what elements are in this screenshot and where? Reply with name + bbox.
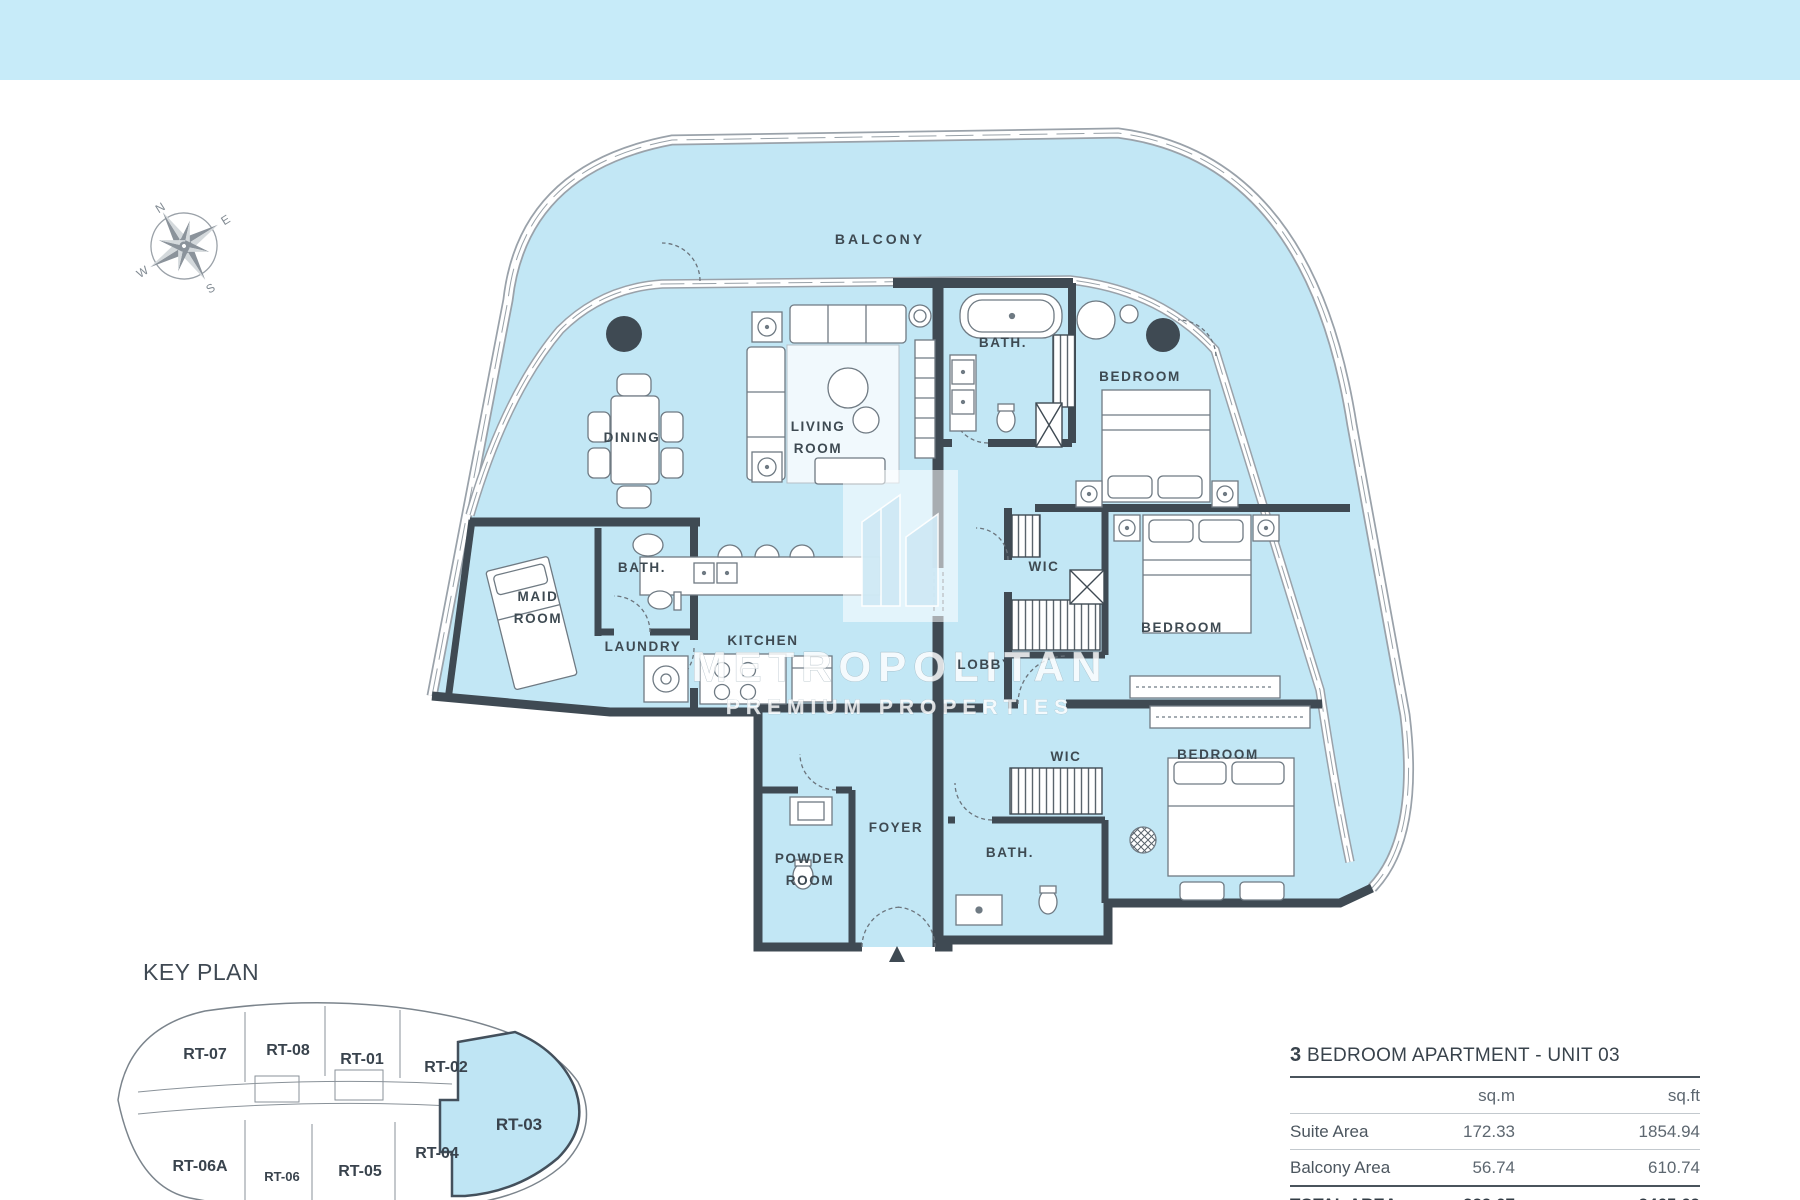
balcony-planter-icon (606, 316, 642, 352)
room-label-maid: MAID (518, 589, 559, 604)
table-row-balcony-area: Balcony Area 56.74 610.74 (1290, 1149, 1700, 1185)
table-row-suite-area: Suite Area 172.33 1854.94 (1290, 1113, 1700, 1149)
table-row-total-area: TOTAL AREA 229.07 2465.69 (1290, 1185, 1700, 1200)
total-area-sqm: 229.07 (1420, 1195, 1515, 1200)
key-plan-unit-rt06: RT-06 (264, 1169, 299, 1184)
room-label-living: ROOM (794, 441, 842, 456)
compass-w-label: W (134, 263, 152, 281)
room-label-living: LIVING (791, 419, 846, 434)
area-table-header-empty (1290, 1086, 1420, 1106)
room-label-wic-2: WIC (1050, 749, 1081, 764)
room-label-kitchen: KITCHEN (727, 633, 798, 648)
total-area-label: TOTAL AREA (1290, 1195, 1420, 1200)
key-plan-unit-rt05: RT-05 (338, 1163, 382, 1180)
compass-n-label: N (153, 200, 168, 216)
shaft-box-icon (1070, 570, 1104, 604)
page: N E S W (0, 0, 1800, 1200)
compass-rose-icon: N E S W (110, 174, 259, 323)
room-label-bath-master: BATH. (979, 335, 1027, 350)
floor-plan-canvas: N E S W (0, 0, 1800, 1200)
room-label-dining: DINING (604, 430, 661, 445)
total-area-sqft: 2465.69 (1515, 1195, 1700, 1200)
compass-s-label: S (203, 280, 217, 296)
room-label-powder: POWDER (775, 851, 845, 866)
key-plan-unit-rt07: RT-07 (183, 1046, 227, 1063)
area-table-header-row: sq.m sq.ft (1290, 1076, 1700, 1113)
key-plan-unit-rt04: RT-04 (415, 1145, 459, 1162)
room-label-bath-2: BATH. (986, 845, 1034, 860)
room-label-bedroom-2: BEDROOM (1141, 620, 1223, 635)
key-plan-unit-rt08: RT-08 (266, 1042, 310, 1059)
balcony-area-sqm: 56.74 (1420, 1158, 1515, 1178)
area-table-title-number: 3 (1290, 1044, 1301, 1066)
key-plan-unit-rt01: RT-01 (340, 1051, 384, 1068)
top-banner (0, 0, 1800, 80)
key-plan-unit-rt03: RT-03 (496, 1115, 542, 1134)
room-label-balcony: BALCONY (835, 231, 925, 247)
room-label-powder: ROOM (786, 873, 834, 888)
balcony-area-sqft: 610.74 (1515, 1158, 1700, 1178)
room-label-lobby: LOBBY (957, 657, 1012, 672)
key-plan: KEY PLAN RT-07 RT-08 RT-01 RT-02 RT-03 R… (118, 959, 586, 1200)
area-table-title: 3 BEDROOM APARTMENT - UNIT 03 (1290, 1044, 1700, 1067)
watermark-title: METROPOLITAN (692, 643, 1109, 690)
room-label-bedroom-1: BEDROOM (1099, 369, 1181, 384)
key-plan-unit-rt02: RT-02 (424, 1059, 468, 1076)
shaft-box-icon (1036, 403, 1062, 447)
room-label-bath-maid: BATH. (618, 560, 666, 575)
balcony-area-label: Balcony Area (1290, 1158, 1420, 1178)
suite-area-sqft: 1854.94 (1515, 1122, 1700, 1142)
area-table-header-sqm: sq.m (1420, 1086, 1515, 1106)
suite-area-sqm: 172.33 (1420, 1122, 1515, 1142)
balcony-planter-icon (1146, 318, 1180, 352)
area-table-header-sqft: sq.ft (1515, 1086, 1700, 1106)
key-plan-title: KEY PLAN (143, 959, 259, 985)
room-label-maid: ROOM (514, 611, 562, 626)
entrance-arrow-icon (889, 946, 905, 962)
suite-area-label: Suite Area (1290, 1122, 1420, 1142)
room-label-wic-1: WIC (1028, 559, 1059, 574)
room-label-laundry: LAUNDRY (605, 639, 682, 654)
key-plan-unit-rt06a: RT-06A (172, 1158, 228, 1175)
room-label-foyer: FOYER (869, 820, 924, 835)
laundry-washer (644, 656, 688, 702)
area-table-title-text: BEDROOM APARTMENT - UNIT 03 (1307, 1045, 1620, 1066)
compass-e-label: E (218, 212, 232, 228)
watermark-subtitle: PREMIUM PROPERTIES (726, 696, 1074, 719)
key-plan-highlight-rt03 (440, 1032, 579, 1196)
area-table: 3 BEDROOM APARTMENT - UNIT 03 sq.m sq.ft… (1290, 1044, 1700, 1200)
room-label-bedroom-3: BEDROOM (1177, 747, 1259, 762)
